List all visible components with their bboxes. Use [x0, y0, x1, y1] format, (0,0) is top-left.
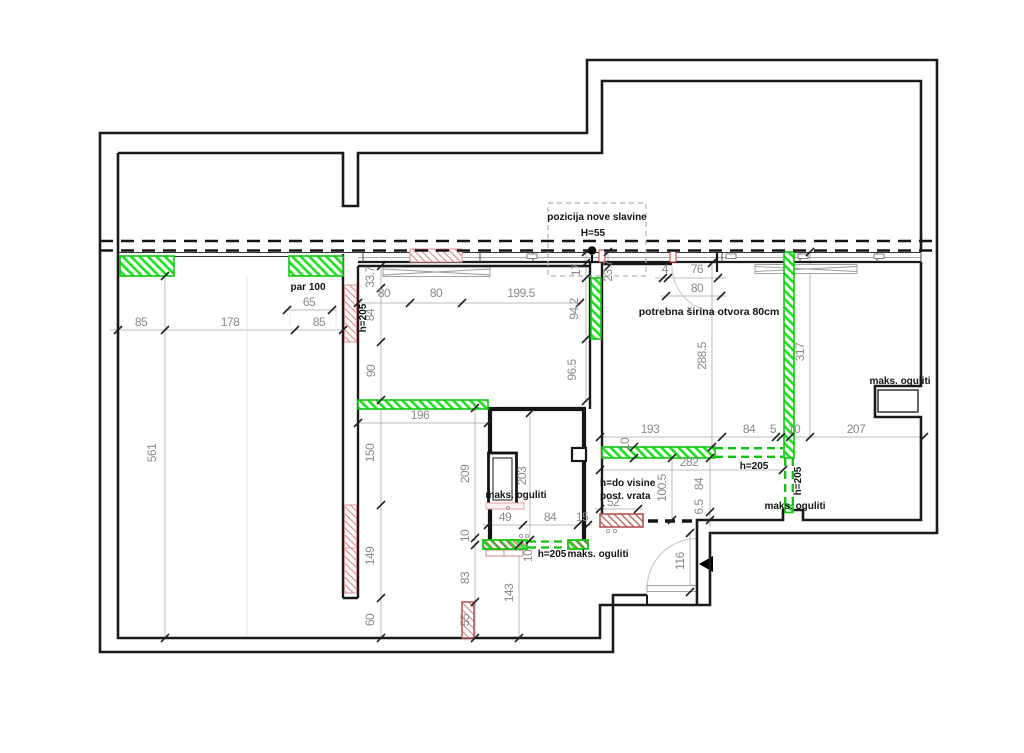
dim-text: 84 — [692, 477, 706, 490]
entrance-door-leaf — [647, 586, 697, 592]
label-maks-oguliti-bathroom: maks. oguliti — [485, 490, 546, 501]
dim-text: 288.5 — [695, 341, 709, 369]
dim-text: 65 — [303, 295, 316, 309]
dim-text: 561 — [145, 443, 159, 462]
dim-text: 33.7 — [363, 265, 377, 287]
label-par-100: par 100 — [290, 282, 325, 293]
dim-text: 5 — [770, 422, 777, 436]
dim-text: 209 — [458, 464, 472, 483]
dim-text: 196 — [411, 408, 430, 422]
oguliti-strip-bathroom — [486, 503, 524, 509]
radiator-kitchen — [383, 267, 490, 277]
faucet-dot-icon — [588, 246, 597, 255]
label-pozicija-nove-slavine: pozicija nove slavine — [547, 212, 647, 223]
label-h205-bathroom: h=205 — [538, 549, 567, 560]
dim-text: 84 — [544, 510, 557, 524]
dim-text: 83 — [458, 571, 472, 584]
exterior-walls — [100, 60, 937, 652]
facade-window-band — [118, 253, 921, 263]
dim-text: 94.2 — [567, 297, 581, 319]
dim-text: 178 — [221, 315, 240, 329]
dim-text: 80 — [430, 286, 443, 300]
dim-text: 193 — [641, 422, 660, 436]
dim-text: 4 — [662, 262, 669, 276]
dim-text: 15 — [576, 510, 589, 524]
dim-text: 76 — [691, 262, 704, 276]
dim-text: 10 — [458, 529, 472, 542]
dim-text: 282 — [680, 455, 699, 469]
radiator-living — [755, 265, 857, 274]
label-post-vrata: post. vrata — [600, 491, 651, 502]
dim-text: 100.5 — [655, 473, 669, 501]
dim-text: 317 — [793, 342, 807, 361]
dim-text: 85 — [313, 315, 326, 329]
dim-text: 23.7 — [601, 259, 615, 281]
dim-text: 80 — [691, 281, 704, 295]
label-h205-corridor: h=205 — [740, 461, 769, 472]
dim-text: 17 — [569, 263, 583, 276]
label-potrebna-sirina-otvora: potrebna širina otvora 80cm — [639, 306, 780, 318]
label-h205-column: h=205 — [793, 466, 804, 495]
label-h205-left-wall: h=205 — [358, 303, 369, 332]
dim-text: 96.5 — [565, 358, 579, 380]
section-cut-lines — [100, 241, 937, 251]
floor-plan-page: 85178658556133.784908080199.51794.296.52… — [0, 0, 1024, 753]
dim-text: 143 — [502, 583, 516, 602]
entrance-door-arc — [647, 539, 697, 589]
new-parapet-left-2 — [289, 256, 343, 276]
label-maks-oguliti-niche: maks. oguliti — [869, 376, 930, 387]
dim-text: 207 — [847, 422, 866, 436]
dimension-ticks — [114, 248, 928, 642]
dim-text: 149 — [363, 546, 377, 565]
niche-maks-oguliti — [878, 390, 918, 412]
dim-text: 6.5 — [692, 499, 706, 515]
dim-text: 55 — [458, 613, 472, 626]
label-maks-oguliti-bathroom2: maks. oguliti — [567, 549, 628, 560]
floor-plan-svg: 85178658556133.784908080199.51794.296.52… — [0, 0, 1024, 753]
dim-text: 85 — [135, 315, 148, 329]
dim-text: 203 — [515, 466, 529, 485]
dim-text: 80 — [378, 286, 391, 300]
label-maks-oguliti-corridor: maks. oguliti — [764, 501, 825, 512]
dim-text: 84 — [743, 422, 756, 436]
label-h-do-visine: h=do visine — [600, 478, 656, 489]
dim-text: 150 — [363, 443, 377, 462]
dim-text: 10 — [788, 422, 801, 436]
dim-text: 60 — [363, 613, 377, 626]
label-h55: H=55 — [581, 228, 606, 239]
dim-text: 49 — [499, 510, 512, 524]
new-wall-kitchen-divider — [591, 278, 601, 339]
dim-text: 199.5 — [507, 286, 535, 300]
dimension-lines — [110, 252, 924, 638]
dim-text: 116 — [673, 551, 687, 569]
new-parapet-left-1 — [120, 256, 174, 276]
dim-text: 10 — [618, 437, 632, 450]
wall-notch — [572, 448, 586, 461]
dim-text: 90 — [364, 364, 378, 377]
dim-text: 10 — [521, 549, 535, 562]
